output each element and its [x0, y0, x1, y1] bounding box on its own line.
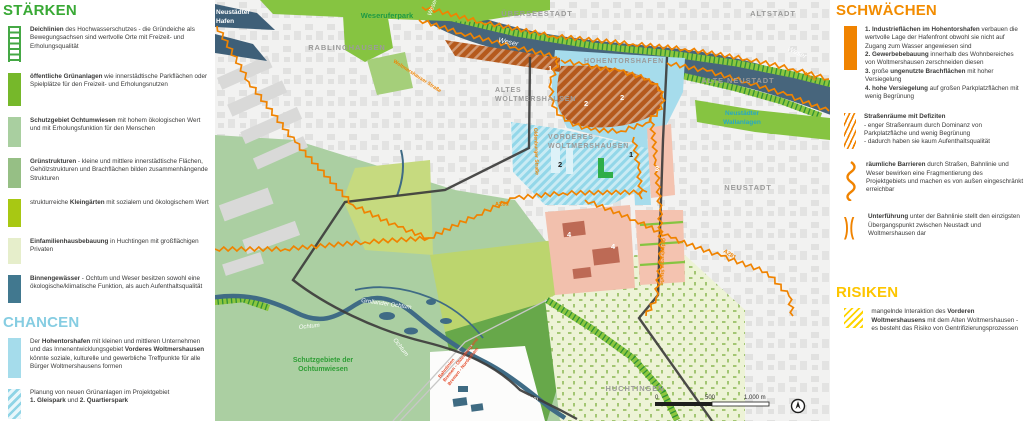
- district-label: WOLTMERSHAUSEN: [548, 143, 629, 150]
- legend-item-text: Straßenräume mit Defiziten - enger Straß…: [864, 113, 1022, 146]
- city-plan-map: ÜBERSEESTADT ALTSTADT RABLINGHAUSEN HOHE…: [215, 0, 830, 421]
- orange-hatch-icon: [844, 113, 856, 149]
- legend-item-gruenstrukturen: Grünstrukturen - kleine und mittlere inn…: [8, 158, 215, 188]
- legend-item-gruenanlagen: öffentliche Grünanlagen wie innerstädtis…: [8, 73, 215, 106]
- district-label: HOHENTORSHAFEN: [584, 58, 664, 65]
- park-label: Neustädter: [725, 110, 759, 117]
- legend-item-text: Einfamilienhausbebauung in Huchtingen mi…: [30, 238, 212, 255]
- legend-item-text: öffentliche Grünanlagen wie innerstädtis…: [30, 73, 212, 90]
- legend-item-text: Grünstrukturen - kleine und mittlere inn…: [30, 158, 212, 183]
- orange-wave-icon: [844, 161, 858, 201]
- district-label: ÜBERSEESTADT: [501, 9, 573, 18]
- staerken-title: STÄRKEN: [3, 2, 215, 19]
- lime-square-icon: [8, 199, 21, 227]
- district-label: WOLTMERSHAUSEN: [495, 96, 576, 103]
- legend-item-text: Deichlinien des Hochwasserschutzes - die…: [30, 26, 212, 51]
- legend-item-einfamilienhaus: Einfamilienhausbebauung in Huchtingen mi…: [8, 238, 215, 264]
- sage-square-icon: [8, 117, 21, 147]
- chance-marker-quartierspark: 2: [558, 160, 562, 169]
- district-label: ALTES: [495, 87, 521, 94]
- protected-area-label: Schutzgebiete der: [293, 357, 354, 364]
- highway-label: A281: [495, 201, 510, 208]
- harbor-label: Hafen: [216, 18, 234, 25]
- legend-item-industrie: 1. Industrieflächen im Hohentorshafen ve…: [844, 26, 1024, 101]
- district-label: ALTSTADT: [750, 9, 796, 18]
- district-label: ALTE NEUSTADT: [701, 76, 774, 85]
- legend-item-text: Unterführung unter der Bahnlinie stellt …: [868, 213, 1024, 238]
- mid-green-square-icon: [8, 158, 21, 188]
- legend-item-text: Der Hohentorshafen mit kleinen und mittl…: [30, 338, 212, 371]
- orange-square-icon: [844, 26, 857, 70]
- risiken-title: RISIKEN: [836, 284, 1024, 301]
- north-arrow-icon: [792, 400, 805, 413]
- yellow-hatch-icon: [844, 308, 863, 328]
- swot-map-poster: STÄRKEN Deichlinien des Hochwasserschutz…: [0, 0, 1024, 421]
- legend-item-barrieren: räumliche Barrieren durch Straßen, Bahnl…: [844, 161, 1024, 201]
- legend-item-text: Binnengewässer - Ochtum und Weser besitz…: [30, 275, 212, 292]
- legend-item-gruenplanung: Planung von neuen Grünanlagen im Projekt…: [8, 389, 215, 419]
- panel-staerken-chancen: STÄRKEN Deichlinien des Hochwasserschutz…: [0, 0, 215, 421]
- weakness-marker-3: 3: [655, 164, 659, 173]
- orange-parentheses-icon: )(: [844, 213, 860, 240]
- svg-text:1.000 m: 1.000 m: [744, 395, 766, 401]
- weakness-marker-2: 2: [620, 93, 624, 102]
- chance-marker-gleispark: 1: [629, 150, 633, 159]
- district-label: NEUSTADT: [724, 183, 771, 192]
- district-label: HUCHTINGEN: [606, 384, 665, 393]
- harbor-label: Neustädter: [216, 9, 250, 16]
- schwaechen-title: SCHWÄCHEN: [836, 2, 1024, 19]
- legend-item-text: strukturreiche Kleingärten mit sozialem …: [30, 199, 212, 207]
- legend-item-binnengewaesser: Binnengewässer - Ochtum und Weser besitz…: [8, 275, 215, 303]
- legend-item-unterfuehrung: )( Unterführung unter der Bahnlinie stel…: [844, 213, 1024, 238]
- legend-item-text: räumliche Barrieren durch Straßen, Bahnl…: [866, 161, 1024, 194]
- map-graphic: ÜBERSEESTADT ALTSTADT RABLINGHAUSEN HOHE…: [215, 0, 830, 421]
- panel-schwaechen-risiken: SCHWÄCHEN 1. Industrieflächen im Hohento…: [833, 0, 1024, 421]
- blue-building: [458, 386, 468, 392]
- teal-square-icon: [8, 275, 21, 303]
- park-label: Wallanlagen: [723, 119, 761, 126]
- legend-item-schutzgebiet: Schutzgebiet Ochtumwiesen mit hohem ökol…: [8, 117, 215, 147]
- district-label: VORDERES: [548, 134, 594, 141]
- dike-ladder-green-icon: [8, 26, 21, 62]
- legend-item-hohentorshafen: Der Hohentorshafen mit kleinen und mittl…: [8, 338, 215, 378]
- legend-item-text: Planung von neuen Grünanlagen im Projekt…: [30, 389, 212, 406]
- green-square-icon: [8, 73, 21, 106]
- svg-text:500: 500: [705, 395, 716, 401]
- park-blob: [763, 122, 781, 134]
- legend-item-text: Schutzgebiet Ochtumwiesen mit hohem ökol…: [30, 117, 212, 134]
- protected-area-label: Ochtumwiesen: [298, 366, 348, 373]
- light-blue-square-icon: [8, 338, 21, 378]
- legend-item-strassenraeume: Straßenräume mit Defiziten - enger Straß…: [844, 113, 1024, 149]
- light-blue-hatch-icon: [8, 389, 21, 419]
- district-label: RABLINGHAUSEN: [308, 43, 386, 52]
- legend-item-gentrifizierung: mangelnde Interaktion des Vorderen Woltm…: [844, 308, 1024, 333]
- planned-park-bar: [566, 148, 573, 174]
- chancen-title: CHANCEN: [3, 314, 215, 331]
- park-label: Weseruferpark: [361, 11, 414, 20]
- legend-item-kleingaerten: strukturreiche Kleingärten mit sozialem …: [8, 199, 215, 227]
- pale-green-square-icon: [8, 238, 21, 264]
- legend-item-text: 1. Industrieflächen im Hohentorshafen ve…: [865, 26, 1023, 101]
- legend-item-deichlinien: Deichlinien des Hochwasserschutzes - die…: [8, 26, 215, 62]
- weakness-marker-2: 2: [584, 99, 588, 108]
- weakness-marker-1: 1: [548, 64, 552, 73]
- legend-item-text: mangelnde Interaktion des Vorderen Woltm…: [871, 308, 1024, 333]
